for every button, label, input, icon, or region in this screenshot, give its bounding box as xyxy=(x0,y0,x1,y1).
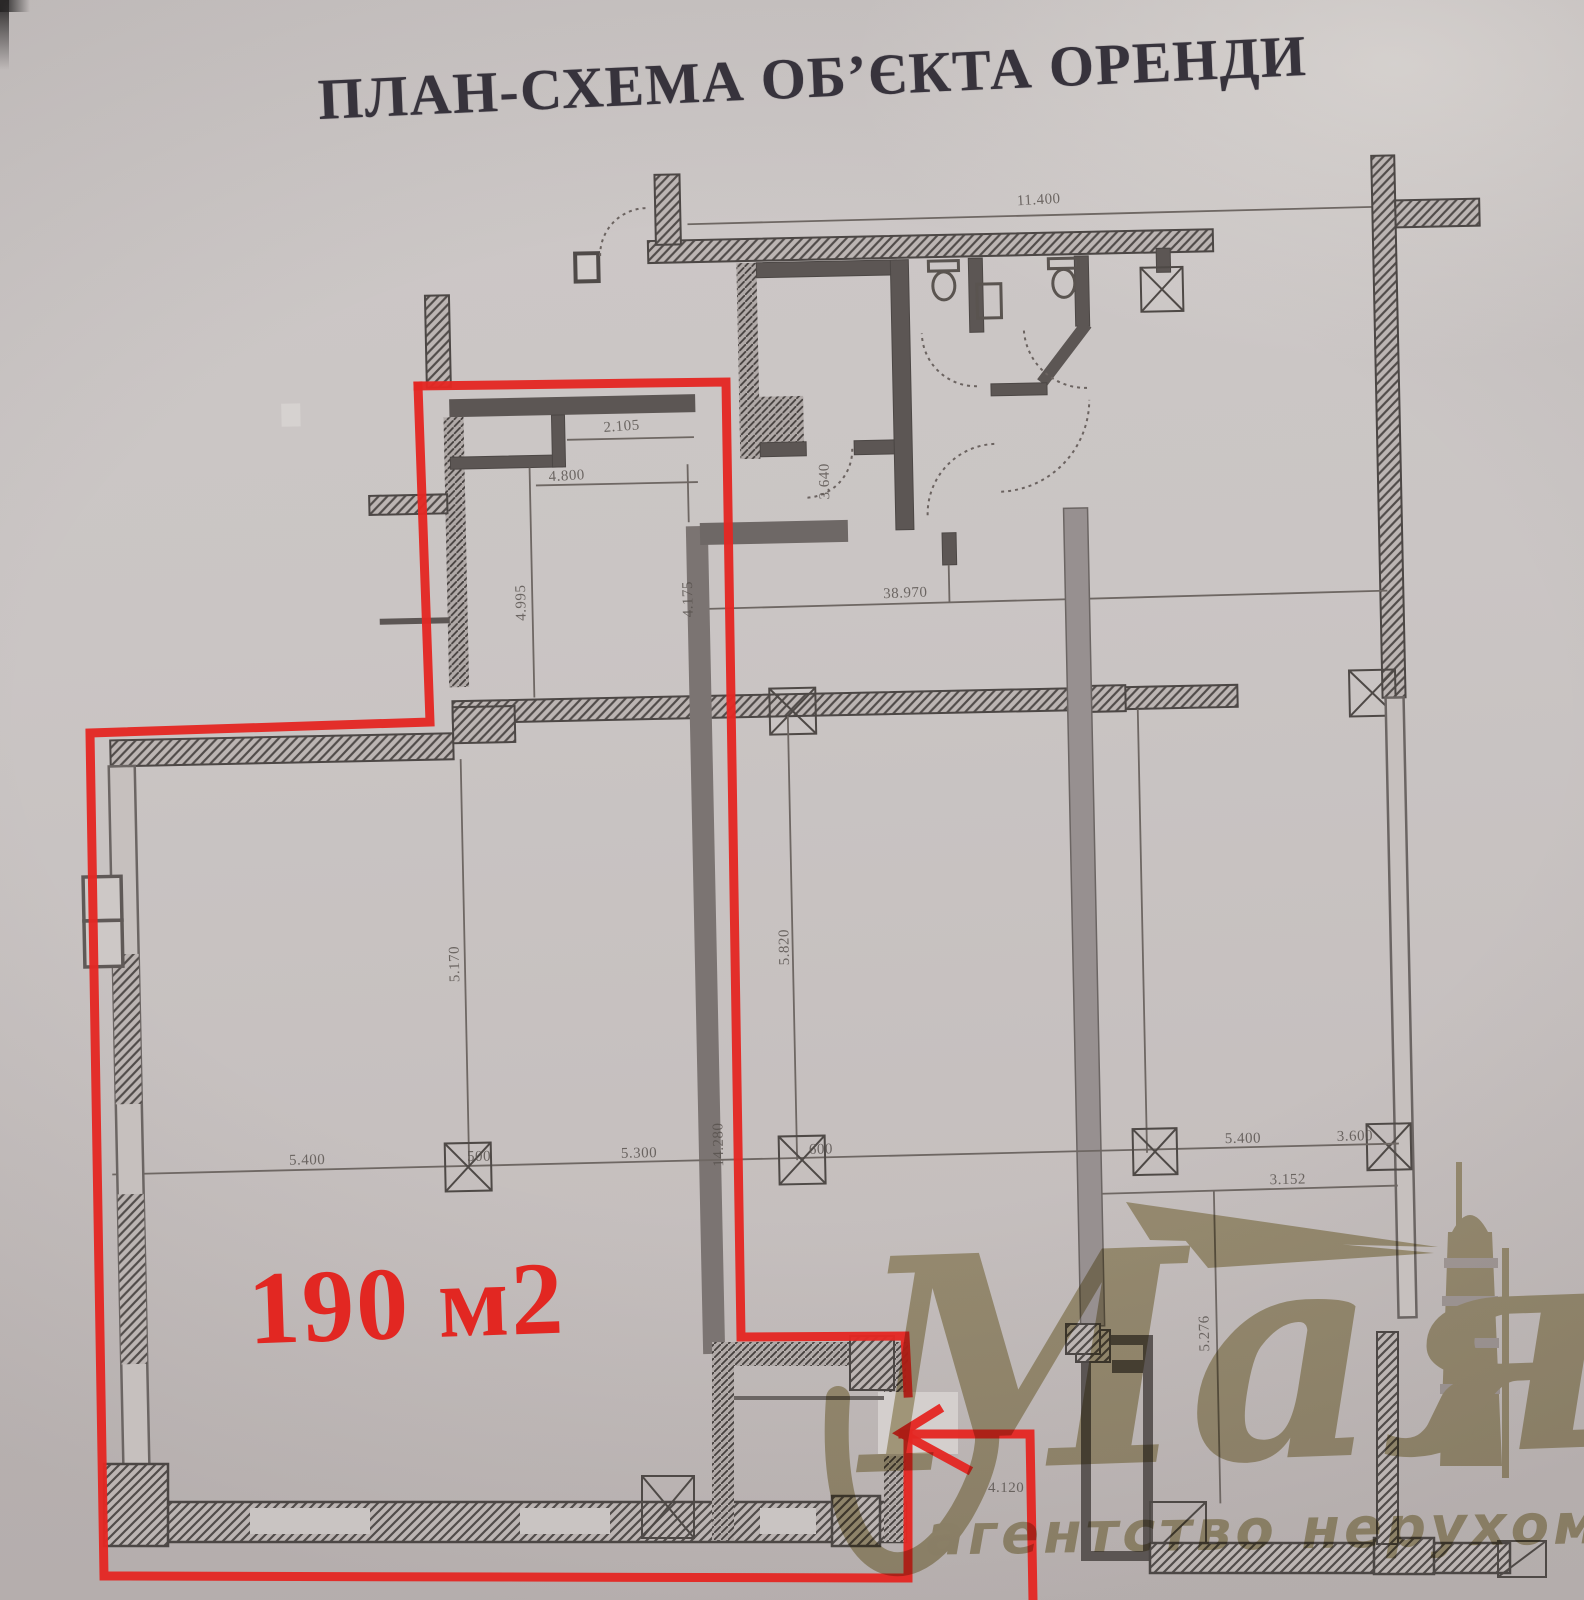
wall-storage-top xyxy=(756,260,896,278)
wall-notch-inner-h xyxy=(450,455,562,469)
wall-mid-left-seg xyxy=(110,733,453,766)
entry-door-jamb xyxy=(575,253,599,281)
dim-line xyxy=(567,437,694,440)
dim-label: 5.170 xyxy=(447,946,464,983)
wall-grey-left xyxy=(686,526,725,1354)
wall-corner-sw xyxy=(104,1464,168,1546)
dim-label: 5.820 xyxy=(776,929,793,966)
dim-label: 5.300 xyxy=(621,1145,658,1162)
dim-label: 4.800 xyxy=(548,467,585,485)
entry-door-arc xyxy=(599,208,647,256)
floor-plan-drawing: 11.400 2.105 4.800 3.640 38.970 4.995 4.… xyxy=(0,0,1584,1600)
dim-label: 14.280 xyxy=(710,1122,727,1167)
wall-notch-inner-v xyxy=(551,415,565,467)
dim-line-top xyxy=(687,207,1379,224)
dim-line xyxy=(530,468,535,698)
wall-stub-corridor xyxy=(942,533,957,565)
wall-stub-right xyxy=(1156,248,1170,272)
chamfer-door-arc xyxy=(999,400,1091,492)
column xyxy=(1133,1128,1178,1175)
dim-label: 38.970 xyxy=(883,585,928,603)
wall-wc-partition-2 xyxy=(1074,256,1089,326)
dim-line-38970 xyxy=(707,591,1387,609)
wall-storage-bottom-a xyxy=(760,442,806,457)
wall-notch-top xyxy=(449,394,695,417)
wall-left-hatch-b xyxy=(118,1194,148,1365)
dim-label: 5.400 xyxy=(289,1152,326,1169)
wall-left-hatch-a xyxy=(113,954,142,1105)
wall-notch-upper xyxy=(425,295,451,387)
wall-right-upper xyxy=(1371,155,1405,697)
dim-label: 11.400 xyxy=(1017,191,1062,209)
wc-door-arc-1 xyxy=(922,332,977,387)
column xyxy=(1141,267,1184,312)
dim-label: 3.600 xyxy=(1337,1128,1374,1145)
watermark-tagline: агентство нерухомості xyxy=(926,1490,1584,1569)
wall-left-outer xyxy=(109,766,150,1482)
wall-grey-cap xyxy=(700,520,848,545)
wall-stub-west-2 xyxy=(380,620,450,621)
area-label: 190 м2 xyxy=(246,1239,567,1369)
vestibule-left-wall xyxy=(712,1342,734,1540)
dim-label: 5.400 xyxy=(1225,1130,1262,1147)
dim-label: 4.995 xyxy=(513,584,530,621)
watermark: Маяк агентство нерухомості xyxy=(837,1162,1584,1569)
dim-label: 3.640 xyxy=(817,463,834,500)
wall-storage-right xyxy=(890,260,914,530)
dim-label: 2.105 xyxy=(603,417,640,436)
grid-line xyxy=(1138,709,1147,1153)
dim-label: 500 xyxy=(467,1149,491,1165)
wall-top-right-arm xyxy=(1395,199,1480,228)
wall-top-main xyxy=(648,229,1213,263)
window-gap xyxy=(520,1508,610,1534)
dim-label: 4.175 xyxy=(680,581,697,618)
dim-label: 600 xyxy=(809,1141,833,1157)
wall-wc-lower xyxy=(991,383,1047,396)
watermark-brand: Маяк xyxy=(845,1162,1584,1542)
scanned-floor-plan-photo: { "header": { "title": "ПЛАН-СХЕМА ОБ’ЄК… xyxy=(0,0,1584,1600)
bath-door-arc xyxy=(926,444,997,515)
window-gap xyxy=(760,1508,816,1534)
dim-line xyxy=(688,464,689,522)
dim-tick xyxy=(949,565,950,603)
wall-entry-pier xyxy=(654,174,680,245)
wall-stub-west xyxy=(369,494,447,515)
paper-speck xyxy=(281,403,300,426)
wall-storage-bottom-b xyxy=(854,440,894,455)
window-gap xyxy=(250,1508,370,1534)
wall-mid-corner xyxy=(453,706,516,743)
toilet-icon xyxy=(928,261,959,301)
